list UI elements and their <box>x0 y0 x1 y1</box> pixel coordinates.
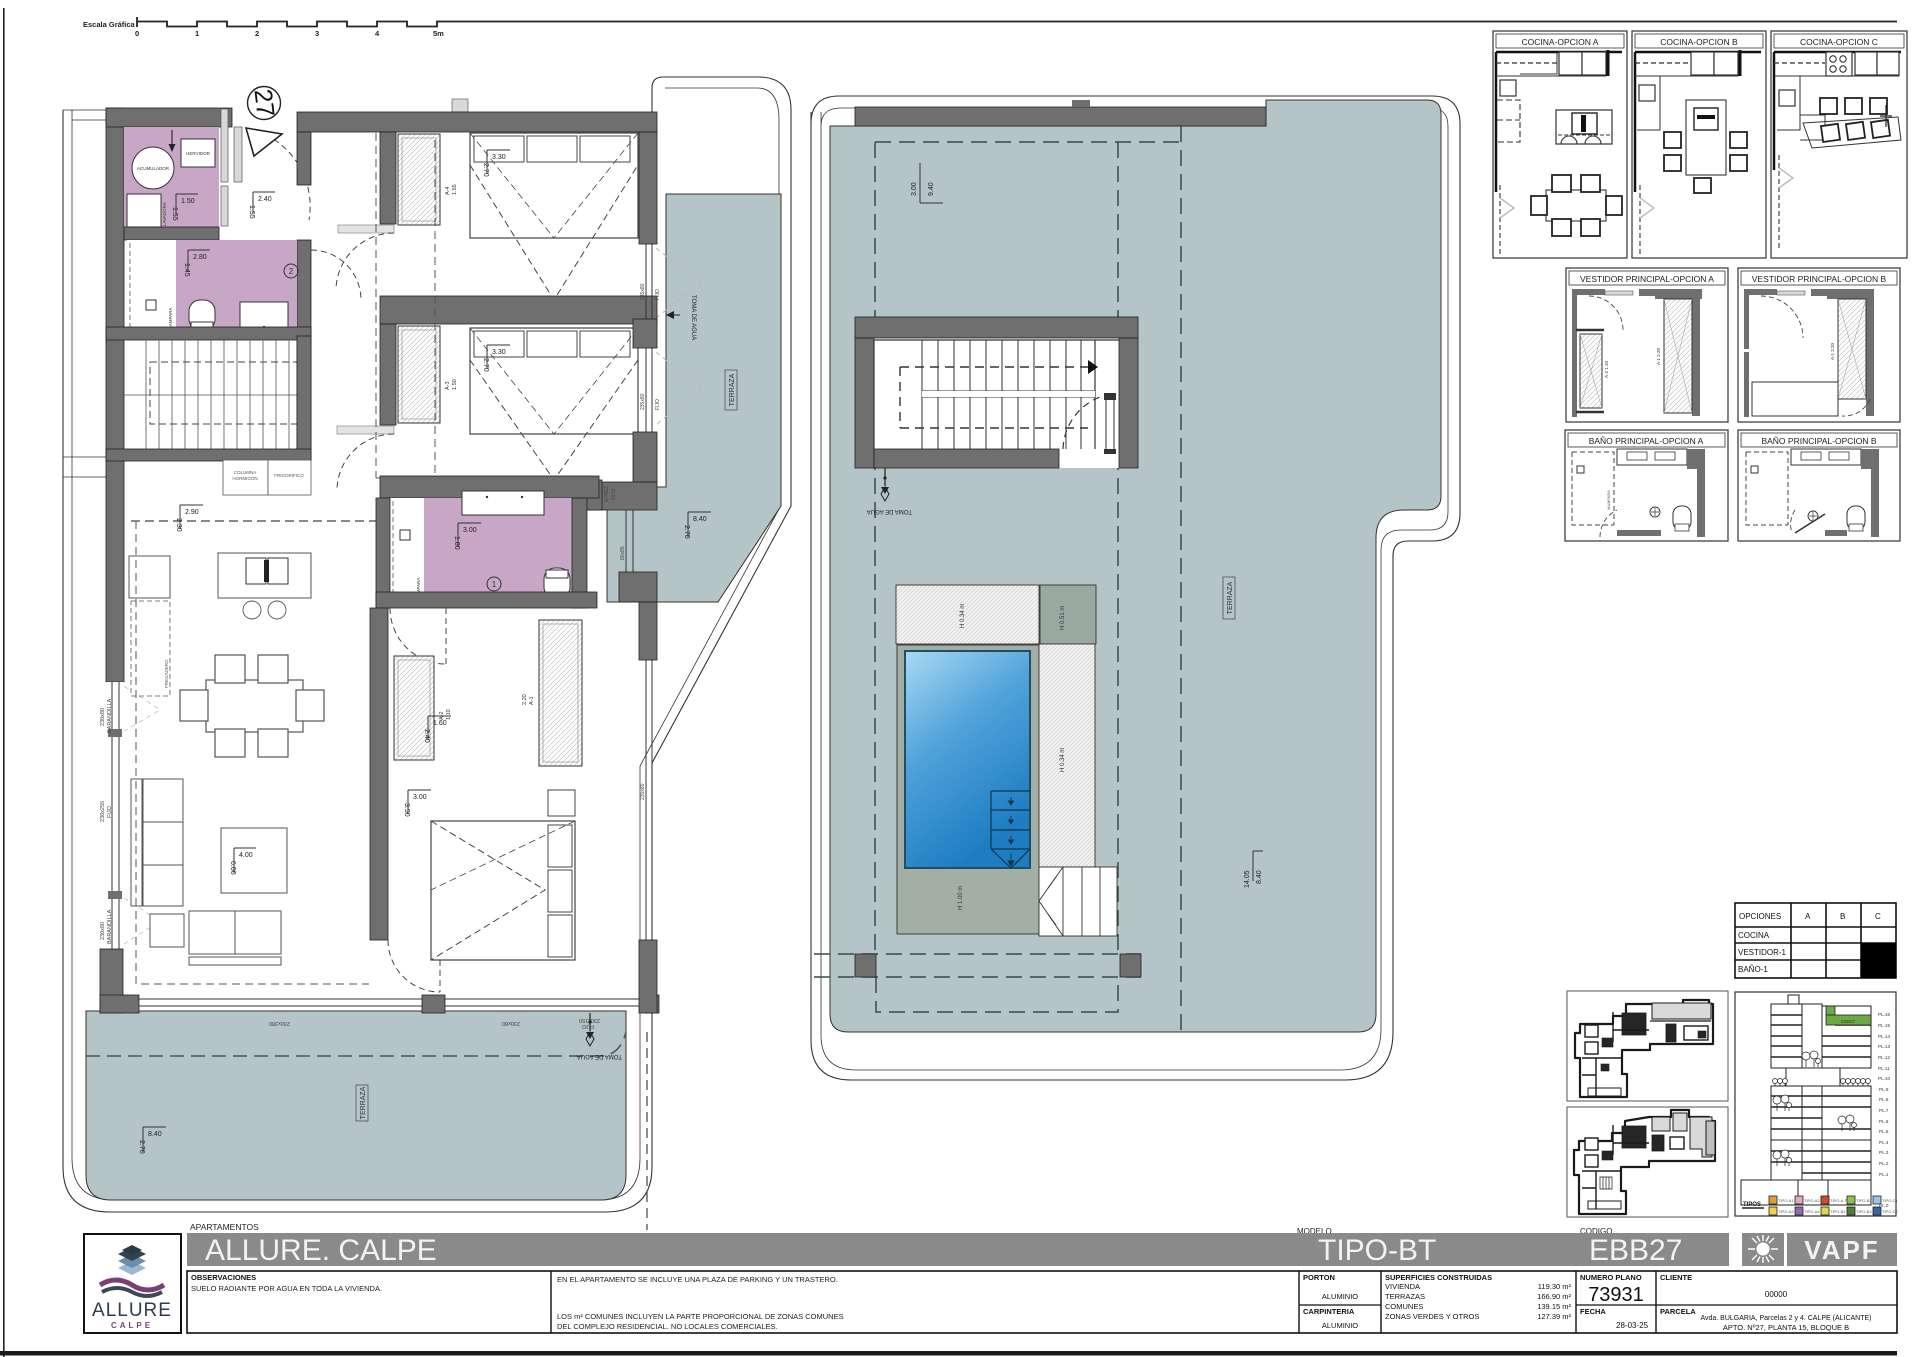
svg-text:8.40: 8.40 <box>693 516 707 523</box>
svg-text:TIPO-C1: TIPO-C1 <box>1882 1198 1899 1203</box>
svg-text:TERRAZA: TERRAZA <box>729 373 736 406</box>
svg-text:1.80: 1.80 <box>453 536 460 550</box>
svg-text:TIPO-A2: TIPO-A2 <box>1778 1209 1794 1214</box>
svg-text:127.39 m²: 127.39 m² <box>1537 1312 1571 1321</box>
svg-text:2.70: 2.70 <box>683 525 690 539</box>
svg-text:A: A <box>1805 912 1811 921</box>
svg-text:PL.3: PL.3 <box>1879 1150 1889 1155</box>
svg-text:3.00: 3.00 <box>911 182 918 196</box>
svg-text:APTO. Nº27, PLANTA 15, BLOQUE: APTO. Nº27, PLANTA 15, BLOQUE B <box>1723 1323 1849 1332</box>
svg-text:PARCELA: PARCELA <box>1660 1307 1696 1316</box>
svg-text:OBSERVACIONES: OBSERVACIONES <box>191 1273 256 1282</box>
svg-text:235x80: 235x80 <box>640 783 646 800</box>
svg-text:PL.4: PL.4 <box>1879 1140 1889 1145</box>
svg-text:PL.12: PL.12 <box>1878 1055 1890 1060</box>
svg-text:H 0.51 m: H 0.51 m <box>1060 606 1066 630</box>
svg-text:ACUMULADOR: ACUMULADOR <box>137 166 170 171</box>
svg-text:VESTIDOR PRINCIPAL-OPCION B: VESTIDOR PRINCIPAL-OPCION B <box>1752 274 1887 284</box>
svg-text:1.10: 1.10 <box>446 709 452 720</box>
svg-text:PL.15: PL.15 <box>1878 1023 1890 1028</box>
svg-text:VESTIDOR-1: VESTIDOR-1 <box>1738 948 1787 957</box>
svg-text:1.55: 1.55 <box>248 205 255 219</box>
svg-text:1.50: 1.50 <box>452 379 458 390</box>
svg-text:166.90 m²: 166.90 m² <box>1537 1292 1571 1301</box>
svg-text:1.55: 1.55 <box>452 184 458 195</box>
svg-text:1: 1 <box>492 580 497 589</box>
svg-text:BAÑO-1: BAÑO-1 <box>1738 965 1768 974</box>
svg-text:PORTON: PORTON <box>1303 1273 1335 1282</box>
svg-text:230x80: 230x80 <box>100 922 106 940</box>
svg-text:TIPO-C2: TIPO-C2 <box>1882 1209 1899 1214</box>
svg-text:VIVIENDA: VIVIENDA <box>1385 1282 1420 1291</box>
svg-text:A-4: A-4 <box>445 186 451 195</box>
svg-text:BARANDILLA: BARANDILLA <box>107 909 113 944</box>
svg-text:8.40: 8.40 <box>1256 870 1263 884</box>
svg-text:COCINA-OPCION B: COCINA-OPCION B <box>1660 37 1738 47</box>
svg-text:8.40: 8.40 <box>148 1131 162 1138</box>
svg-text:2.80: 2.80 <box>193 254 207 261</box>
svg-text:119.30 m²: 119.30 m² <box>1538 1282 1572 1291</box>
svg-text:FIJO: FIJO <box>107 805 113 818</box>
svg-text:80x85: 80x85 <box>620 546 626 560</box>
svg-text:CLIENTE: CLIENTE <box>1660 1273 1692 1282</box>
svg-text:14.05: 14.05 <box>1244 870 1251 888</box>
svg-text:A-1: A-1 <box>529 696 535 705</box>
svg-text:TIPO-B3: TIPO-B3 <box>1856 1209 1872 1214</box>
svg-text:00000: 00000 <box>1765 1290 1788 1299</box>
svg-text:4.00: 4.00 <box>239 852 253 859</box>
svg-text:PL.7: PL.7 <box>1879 1108 1889 1113</box>
svg-text:1: 1 <box>195 29 199 38</box>
svg-text:2: 2 <box>255 29 259 38</box>
svg-text:2.40: 2.40 <box>423 729 430 743</box>
svg-text:TIPO-A3: TIPO-A3 <box>1804 1198 1820 1203</box>
svg-text:TIPO-BT: TIPO-BT <box>1318 1234 1436 1267</box>
svg-text:1.55: 1.55 <box>171 207 178 221</box>
svg-text:H 0.34 m: H 0.34 m <box>960 604 966 628</box>
svg-text:1.50: 1.50 <box>181 198 195 205</box>
svg-text:235x80: 235x80 <box>640 283 646 300</box>
svg-text:A-2 1.10: A-2 1.10 <box>1604 360 1609 378</box>
svg-text:FRIGORIFICO: FRIGORIFICO <box>274 473 304 478</box>
svg-text:TERRAZAS: TERRAZAS <box>1385 1292 1425 1301</box>
svg-text:A-3: A-3 <box>445 381 451 390</box>
svg-text:PL.9: PL.9 <box>1879 1087 1889 1092</box>
svg-text:5m: 5m <box>433 29 444 38</box>
svg-text:PL.10: PL.10 <box>1878 1076 1890 1081</box>
svg-text:BARANDILLA: BARANDILLA <box>107 698 113 733</box>
svg-text:TIPO-B2: TIPO-B2 <box>1856 1198 1872 1203</box>
svg-text:3.30: 3.30 <box>492 349 506 356</box>
svg-text:ALLURE: ALLURE <box>92 1300 172 1321</box>
svg-text:COCINA: COCINA <box>1738 931 1770 940</box>
svg-text:ALLURE. CALPE: ALLURE. CALPE <box>205 1234 437 1267</box>
svg-text:LAVADORA: LAVADORA <box>162 202 167 226</box>
svg-text:PL.11: PL.11 <box>1878 1066 1890 1071</box>
svg-text:PL.13: PL.13 <box>1878 1044 1890 1049</box>
svg-text:COCINA-OPCION C: COCINA-OPCION C <box>1800 37 1878 47</box>
svg-text:PL.2: PL.2 <box>1879 1161 1889 1166</box>
svg-text:28-03-25: 28-03-25 <box>1616 1321 1649 1330</box>
svg-text:TIPO-A1: TIPO-A1 <box>1778 1198 1794 1203</box>
svg-text:FIJO: FIJO <box>609 489 615 500</box>
svg-text:230x75: 230x75 <box>602 486 608 503</box>
svg-text:BAÑO PRINCIPAL-OPCION A: BAÑO PRINCIPAL-OPCION A <box>1589 436 1704 446</box>
svg-text:27: 27 <box>248 87 279 118</box>
svg-text:CARPINTERIA: CARPINTERIA <box>1303 1307 1355 1316</box>
svg-text:Avda. BULGARIA, Parcelas 2 y 4: Avda. BULGARIA, Parcelas 2 y 4. CALPE (A… <box>1700 1315 1871 1322</box>
svg-text:235x80: 235x80 <box>640 393 646 410</box>
svg-text:EBB27: EBB27 <box>1841 1019 1856 1024</box>
svg-text:TERRAZA: TERRAZA <box>360 1086 367 1119</box>
svg-text:PL.5: PL.5 <box>1879 1129 1889 1134</box>
svg-text:TIPO-A-T: TIPO-A-T <box>1830 1198 1848 1203</box>
svg-text:2.40: 2.40 <box>258 196 272 203</box>
svg-text:3.50: 3.50 <box>403 803 410 817</box>
svg-text:LOS m² COMUNES INCLUYEN LA PAR: LOS m² COMUNES INCLUYEN LA PARTE PROPORC… <box>557 1312 844 1321</box>
svg-text:3.30: 3.30 <box>492 154 506 161</box>
svg-text:C: C <box>1875 912 1881 921</box>
svg-text:H 0.34 m: H 0.34 m <box>1060 748 1066 772</box>
svg-text:SUELO RADIANTE POR AGUA EN TOD: SUELO RADIANTE POR AGUA EN TODA LA VIVIE… <box>191 1284 382 1293</box>
svg-text:APARTAMENTOS: APARTAMENTOS <box>190 1222 259 1232</box>
svg-text:TOMA DE AGUA: TOMA DE AGUA <box>577 1053 622 1059</box>
svg-text:6.00: 6.00 <box>229 861 236 875</box>
svg-text:COLUMNA: COLUMNA <box>234 470 257 475</box>
svg-text:HERVIDOR: HERVIDOR <box>186 151 210 156</box>
svg-text:COMUNES: COMUNES <box>1385 1302 1423 1311</box>
svg-text:0: 0 <box>135 29 139 38</box>
svg-text:EBB27: EBB27 <box>1589 1234 1682 1267</box>
svg-text:TOMA DE AGUA: TOMA DE AGUA <box>867 508 912 514</box>
svg-text:2.70: 2.70 <box>482 358 489 372</box>
svg-text:FREGADERO: FREGADERO <box>164 659 169 688</box>
svg-text:SUPERFICIES CONSTRUIDAS: SUPERFICIES CONSTRUIDAS <box>1385 1273 1492 1282</box>
svg-text:FIJO: FIJO <box>581 1023 594 1029</box>
svg-text:TIPO-B1: TIPO-B1 <box>1830 1209 1846 1214</box>
svg-text:FIJO: FIJO <box>655 399 661 410</box>
svg-text:PL.16: PL.16 <box>1878 1012 1890 1017</box>
svg-text:3.00: 3.00 <box>463 527 477 534</box>
svg-text:3: 3 <box>315 29 319 38</box>
svg-text:BAÑO PRINCIPAL-OPCION B: BAÑO PRINCIPAL-OPCION B <box>1761 436 1876 446</box>
svg-text:TIPO-A4: TIPO-A4 <box>1804 1209 1820 1214</box>
svg-text:230x80: 230x80 <box>100 708 106 726</box>
svg-text:VESTIDOR PRINCIPAL-OPCION A: VESTIDOR PRINCIPAL-OPCION A <box>1580 274 1714 284</box>
svg-text:TERRAZA: TERRAZA <box>1227 581 1234 614</box>
svg-text:2.90: 2.90 <box>185 509 199 516</box>
svg-text:OPCIONES: OPCIONES <box>1739 912 1781 921</box>
svg-text:230x255: 230x255 <box>100 801 106 822</box>
svg-text:PL.8: PL.8 <box>1879 1097 1889 1102</box>
svg-text:VAPF: VAPF <box>1804 1235 1879 1265</box>
svg-text:1.45: 1.45 <box>183 263 190 277</box>
svg-text:Escala Gráfica: Escala Gráfica <box>83 20 136 29</box>
svg-text:H 1.00 m: H 1.00 m <box>958 886 964 910</box>
svg-text:2.30: 2.30 <box>175 518 182 532</box>
svg-text:B: B <box>1840 912 1845 921</box>
svg-text:139.15 m²: 139.15 m² <box>1537 1302 1571 1311</box>
svg-text:2: 2 <box>289 267 294 276</box>
svg-text:COCINA-OPCION A: COCINA-OPCION A <box>1522 37 1599 47</box>
svg-text:9.40: 9.40 <box>928 182 935 196</box>
svg-text:2.70: 2.70 <box>482 163 489 177</box>
svg-text:ZONAS VERDES Y OTROS: ZONAS VERDES Y OTROS <box>1385 1312 1479 1321</box>
svg-text:HORMIGON: HORMIGON <box>232 476 257 481</box>
svg-text:DEL COMPLEJO RESIDENCIAL. NO L: DEL COMPLEJO RESIDENCIAL. NO LOCALES COM… <box>557 1322 778 1331</box>
svg-text:73931: 73931 <box>1588 1284 1644 1306</box>
svg-text:FECHA: FECHA <box>1580 1307 1606 1316</box>
svg-text:PL.14: PL.14 <box>1878 1034 1890 1039</box>
svg-text:230x80: 230x80 <box>502 1020 520 1026</box>
svg-text:3.00: 3.00 <box>413 794 427 801</box>
svg-text:2.70: 2.70 <box>138 1140 145 1154</box>
svg-text:MAMPARA: MAMPARA <box>1606 490 1611 510</box>
svg-text:ALUMINIO: ALUMINIO <box>1322 1321 1358 1330</box>
svg-text:1.60: 1.60 <box>433 720 447 727</box>
svg-text:2.20: 2.20 <box>522 694 528 705</box>
svg-text:CALPE: CALPE <box>111 1321 153 1330</box>
svg-text:NUMERO PLANO: NUMERO PLANO <box>1580 1273 1642 1282</box>
svg-text:PL.6: PL.6 <box>1879 1119 1889 1124</box>
svg-text:PL.1: PL.1 <box>1879 1172 1889 1177</box>
svg-text:TIPOS: TIPOS <box>1743 1202 1761 1208</box>
svg-text:230x380: 230x380 <box>269 1020 290 1026</box>
svg-text:TOMA DE AGUA: TOMA DE AGUA <box>690 295 696 340</box>
svg-text:EN EL APARTAMENTO SE INCLUYE U: EN EL APARTAMENTO SE INCLUYE UNA PLAZA D… <box>557 1275 838 1284</box>
svg-text:FIJO: FIJO <box>655 289 661 300</box>
svg-text:ALUMINIO: ALUMINIO <box>1322 1292 1358 1301</box>
svg-text:A-1 2.20: A-1 2.20 <box>1830 342 1835 360</box>
svg-text:A-1 2.20: A-1 2.20 <box>1656 347 1661 365</box>
